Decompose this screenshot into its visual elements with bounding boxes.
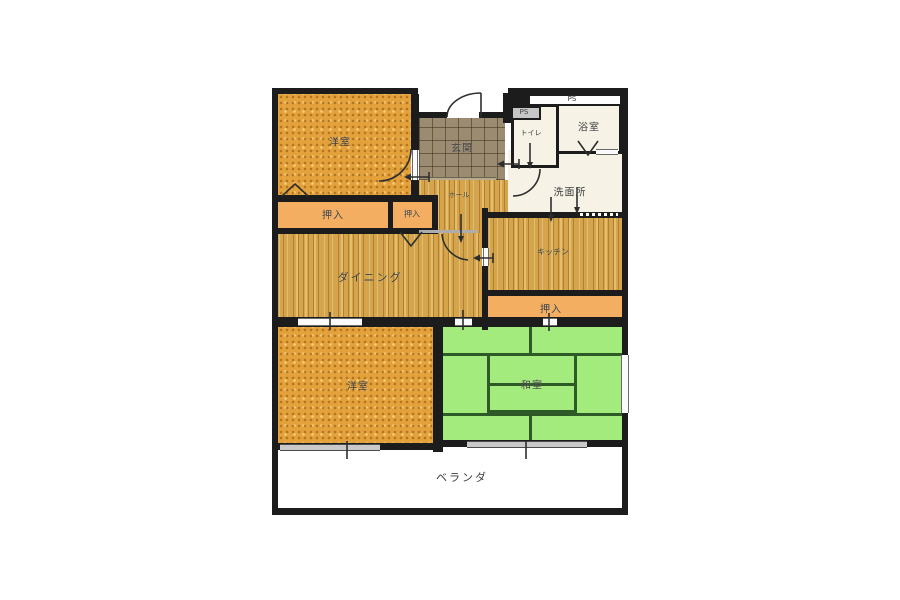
label-closet2: 押入: [404, 209, 420, 220]
label-toilet: トイレ: [521, 128, 542, 138]
tatami-line-h-bottom: [443, 413, 622, 416]
label-western1: 洋室: [329, 134, 351, 149]
slide-door-japanese: [455, 318, 472, 326]
slide-door-western1: [412, 150, 418, 180]
label-dining: ダイニング: [338, 269, 403, 285]
window-bath: [596, 149, 618, 155]
window-japanese-right: [621, 355, 629, 413]
window-western2-veranda: [280, 444, 380, 451]
wall-kitchen-left-upper: [482, 208, 488, 248]
label-entrance: 玄関: [451, 140, 473, 155]
hall-lintel-line: [419, 230, 477, 233]
label-bath: 浴室: [578, 119, 600, 134]
label-hall: ホール: [449, 190, 470, 200]
label-closet1: 押入: [322, 207, 344, 222]
wall-closet-row-top: [272, 195, 437, 202]
label-kitchen: キッチン: [537, 247, 569, 258]
wall-western2-japanese-divider: [433, 327, 443, 452]
wall-western1-right-upper: [411, 94, 419, 150]
wall-closet-divider: [388, 200, 393, 228]
floor-plan-canvas: 洋室 玄関 PS PS トイレ 浴室 洗面所 ホール 押入 押入 ダイニング キ…: [0, 0, 900, 600]
wall-outer-top-left: [272, 88, 418, 94]
label-washroom: 洗面所: [554, 184, 587, 199]
label-japanese: 和室: [521, 377, 543, 392]
tatami-line-v-bottom: [529, 413, 532, 440]
label-veranda: ベランダ: [436, 469, 488, 485]
door-arc-entrance: [447, 93, 481, 117]
wall-outer-bottom: [272, 508, 628, 515]
tatami-line-v-top: [529, 327, 532, 353]
slide-door-closet3-japanese: [543, 318, 557, 326]
wall-entrance-top-left: [415, 112, 447, 118]
door-gap-kitchen: [483, 248, 489, 266]
wall-outer-right: [622, 88, 628, 515]
wall-kitchen-bottom: [482, 290, 622, 296]
wall-outer-left: [272, 88, 278, 515]
label-western2: 洋室: [347, 378, 369, 393]
window-japanese-veranda: [467, 441, 587, 448]
label-closet3: 押入: [540, 301, 562, 316]
wall-closet-row-bottom: [272, 228, 437, 234]
wall-closet2-right: [432, 195, 438, 234]
slide-track-washroom: [580, 213, 618, 216]
label-ps-small: PS: [520, 108, 529, 116]
slide-door-dining-western2: [298, 318, 362, 326]
label-ps-top: PS: [568, 95, 577, 103]
